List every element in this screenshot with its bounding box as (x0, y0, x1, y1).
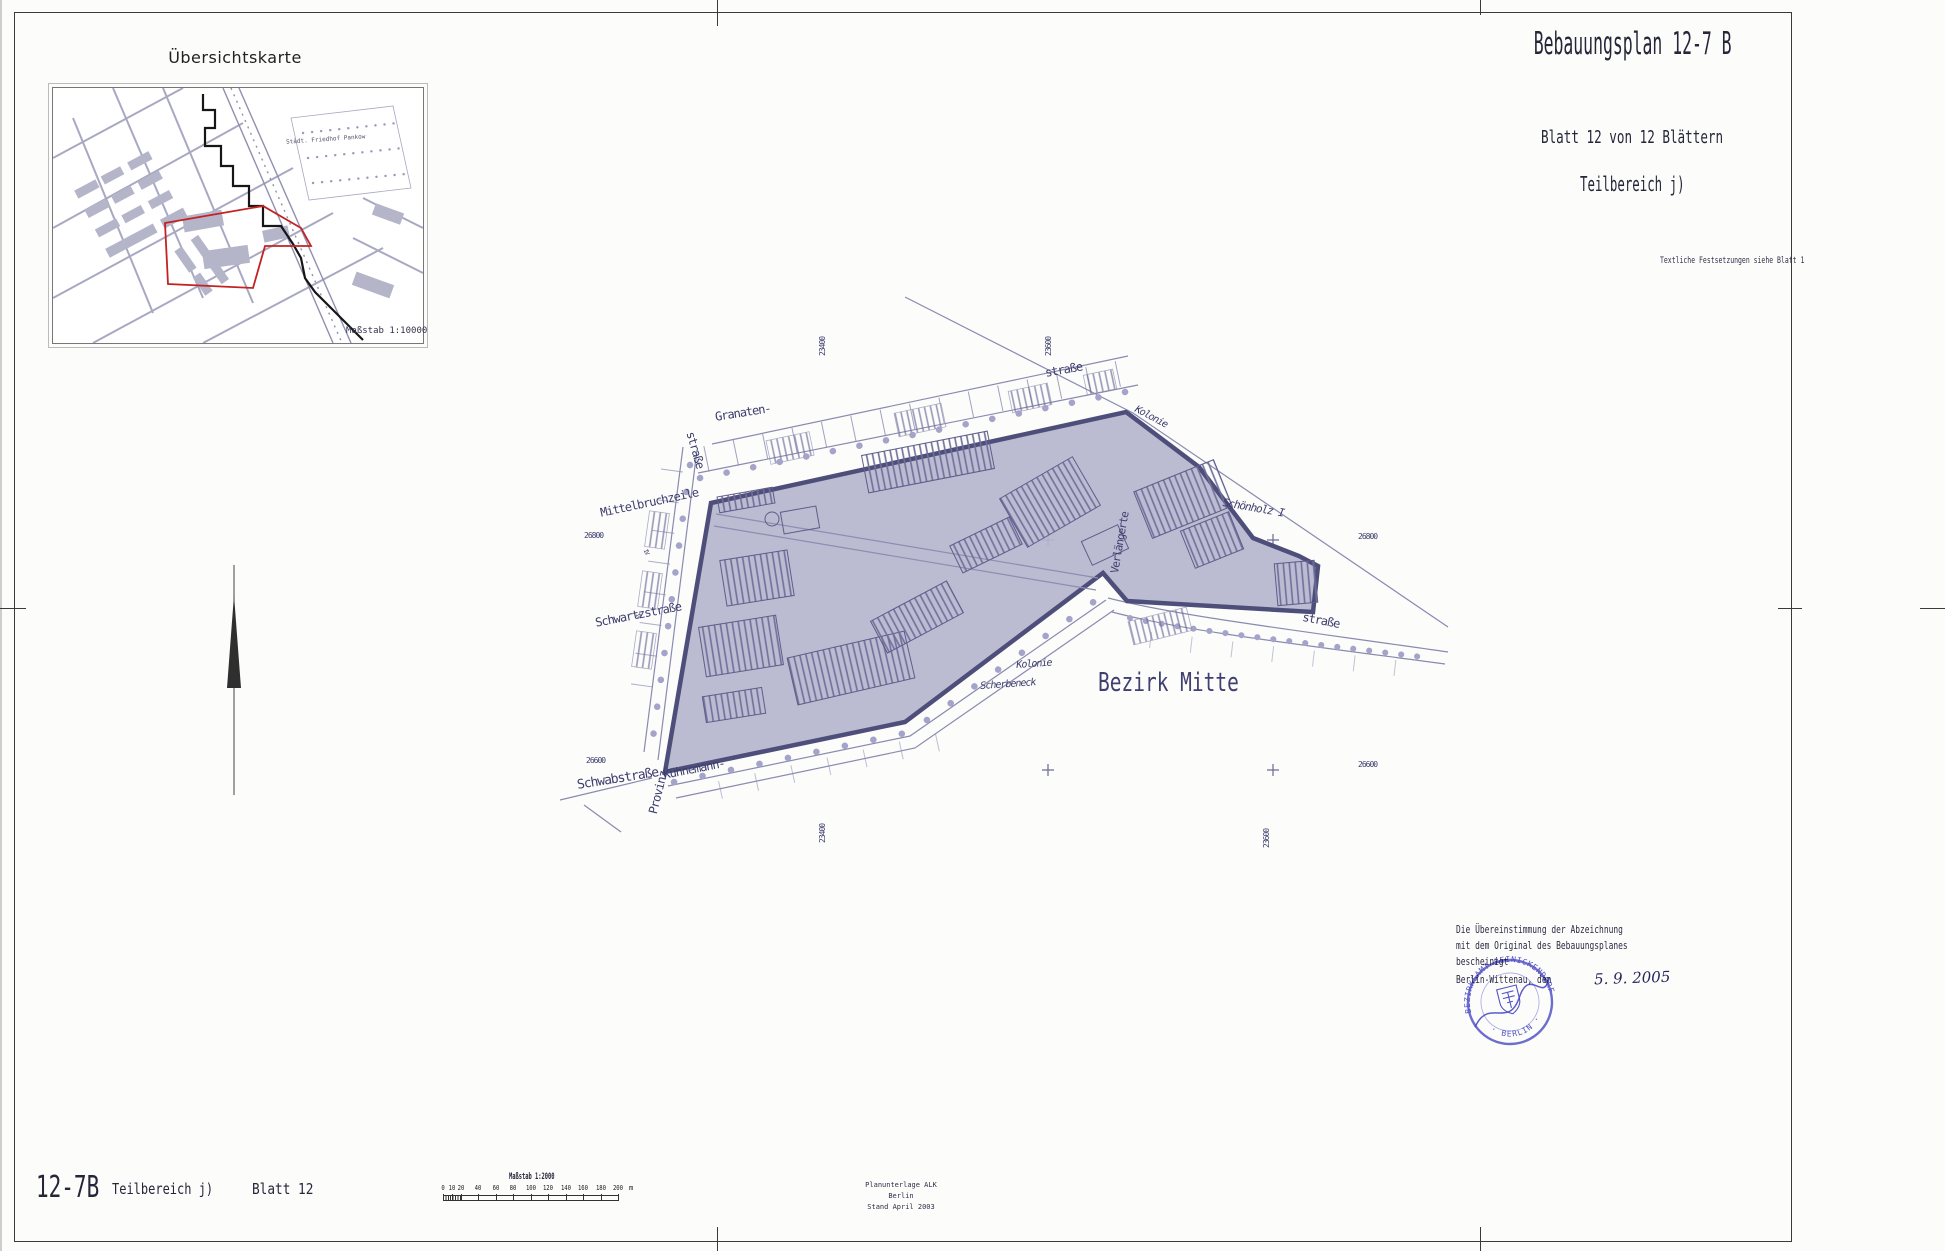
map-label: 26800 (584, 531, 603, 540)
source-note: Planunterlage ALK Berlin Stand April 200… (856, 1180, 946, 1213)
map-label: 23600 (1262, 829, 1271, 848)
scalebar-unit: m (629, 1184, 633, 1192)
map-label: 23400 (818, 337, 827, 356)
plan-sheet: Bebauungsplan 12-7 B Blatt 12 von 12 Blä… (0, 0, 1945, 1251)
handwritten-date: 5. 9. 2005 (1594, 969, 1671, 988)
map-label: 23400 (818, 824, 827, 843)
footer-sheet: Blatt 12 (252, 1180, 324, 1198)
source-line2: Stand April 2003 (856, 1202, 946, 1213)
source-line1: Planunterlage ALK Berlin (856, 1180, 946, 1202)
map-label: 26600 (586, 756, 605, 765)
map-label: 23600 (1044, 337, 1053, 356)
map-label: Bezirk Mitte (1098, 668, 1239, 698)
map-label: 26600 (1358, 760, 1377, 769)
scalebar: 01020406080100120140160180200 m (443, 1184, 653, 1210)
main-map-svg (0, 0, 1945, 1251)
map-label: 26800 (1358, 532, 1377, 541)
footer-part: Teilbereich j) (112, 1180, 238, 1198)
svg-text:· BERLIN ·: · BERLIN · (1488, 1013, 1546, 1045)
scalebar-title: Maßstab 1:2000 (509, 1172, 585, 1182)
